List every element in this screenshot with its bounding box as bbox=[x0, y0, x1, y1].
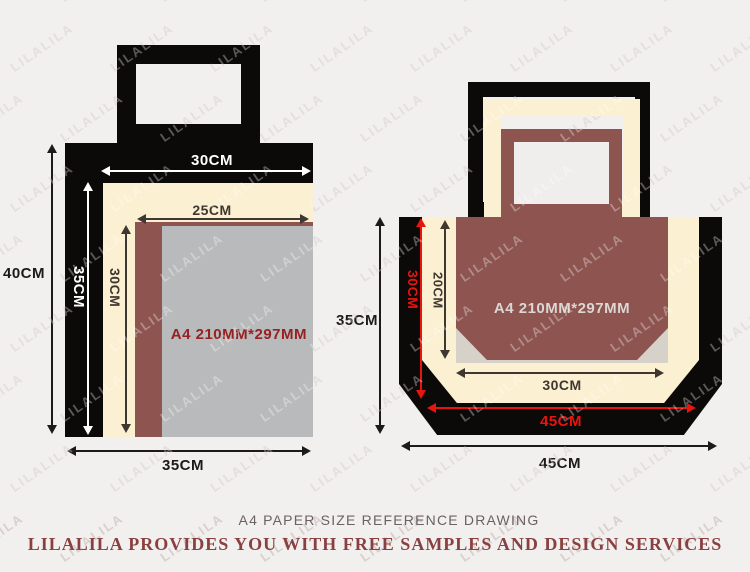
left-a4-size-label: A4 210MM*297MM bbox=[162, 326, 309, 344]
left-inner-height-label: 30CM bbox=[106, 268, 123, 307]
left-top-width-label: 30CM bbox=[162, 152, 262, 170]
right-outer-height-label: 35CM bbox=[334, 312, 380, 330]
right-bag-handle-maroon bbox=[501, 129, 622, 217]
right-base-width-label: 45CM bbox=[511, 413, 611, 431]
a4-size-reference-drawing: LILALILALILALILALILALILALILALILALILALILA… bbox=[0, 0, 750, 572]
left-outer-height-label: 40CM bbox=[2, 265, 46, 283]
right-a4-size-label: A4 210MM*297MM bbox=[456, 300, 668, 318]
right-body-height-label: 30CM bbox=[404, 270, 421, 309]
footer-tagline: LILALILA PROVIDES YOU WITH FREE SAMPLES … bbox=[0, 534, 750, 555]
right-bag-layer-maroon bbox=[456, 217, 668, 360]
footer-subtitle: A4 PAPER SIZE REFERENCE DRAWING bbox=[0, 512, 750, 528]
left-bag-handle bbox=[117, 45, 260, 143]
right-bottom-width-label: 45CM bbox=[510, 455, 610, 473]
right-inner-width-label: 30CM bbox=[512, 377, 612, 394]
left-middle-height-label: 35CM bbox=[69, 266, 87, 308]
left-bottom-width-label: 35CM bbox=[133, 457, 233, 475]
left-inner-width-label: 25CM bbox=[162, 202, 262, 219]
